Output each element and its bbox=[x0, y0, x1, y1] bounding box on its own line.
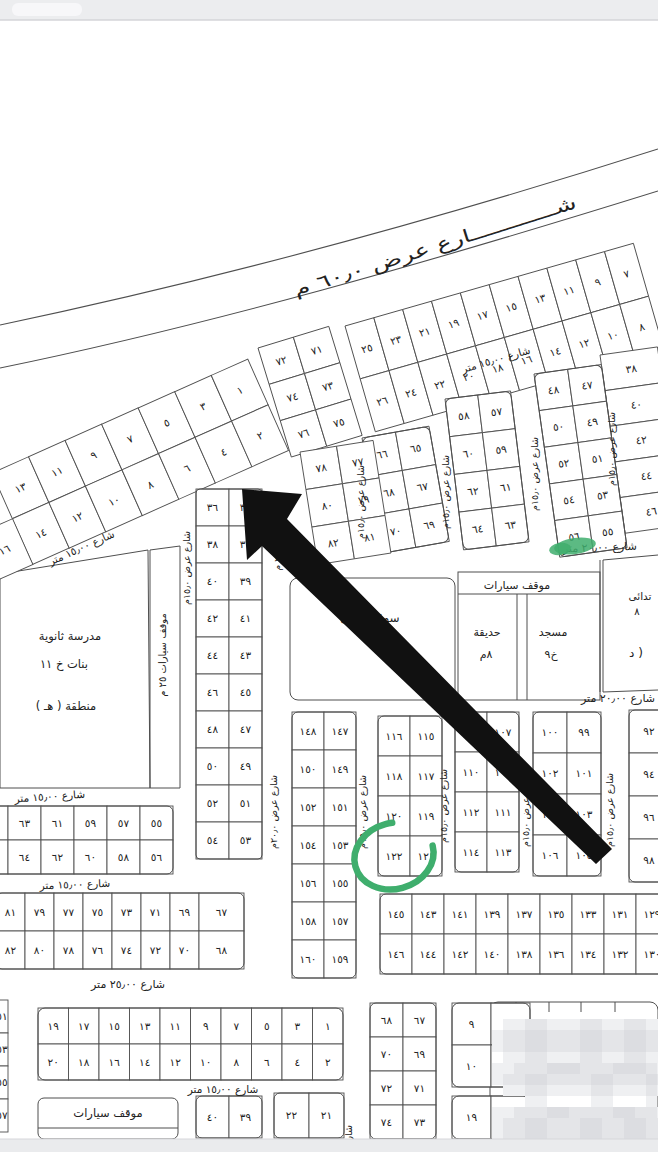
watermark-pixel bbox=[547, 1129, 558, 1140]
watermark-pixel bbox=[536, 1074, 547, 1085]
plot-number: ٤٧ bbox=[240, 723, 252, 735]
watermark-pixel bbox=[514, 1074, 525, 1085]
watermark-pixel bbox=[646, 1096, 657, 1107]
watermark-pixel bbox=[558, 1085, 569, 1096]
plot-number: ١٣٠ bbox=[644, 948, 658, 960]
plot-number: ٨٢ bbox=[327, 536, 340, 550]
watermark-pixel bbox=[580, 1019, 591, 1030]
watermark-pixel bbox=[503, 1107, 514, 1118]
watermark-pixel bbox=[503, 1063, 514, 1074]
watermark-pixel bbox=[602, 1096, 613, 1107]
plot-number: ١٣٤ bbox=[580, 948, 597, 960]
plot-number: ٣ bbox=[294, 1020, 300, 1032]
plot-number: ١ bbox=[325, 1020, 331, 1032]
plot-number: ٥٧ bbox=[490, 405, 503, 418]
watermark-pixel bbox=[635, 1030, 646, 1041]
watermark-pixel bbox=[591, 1041, 602, 1052]
plot-number: ١١٧ bbox=[418, 770, 435, 782]
plot-number: ٥٠ bbox=[552, 420, 565, 433]
plot-number: ٣٦ bbox=[207, 501, 219, 513]
watermark-pixel bbox=[624, 1063, 635, 1074]
watermark-pixel bbox=[646, 1129, 657, 1140]
watermark-pixel bbox=[635, 1019, 646, 1030]
watermark-pixel bbox=[613, 1019, 624, 1030]
plot-number: ١٥٦ bbox=[300, 877, 317, 889]
watermark-pixel bbox=[591, 1074, 602, 1085]
plot-number: ٩٢ bbox=[643, 725, 655, 737]
plot-number: ٥٨ bbox=[457, 409, 470, 422]
plot-number: ١٧ bbox=[78, 1020, 90, 1032]
watermark-pixel bbox=[558, 1030, 569, 1041]
plot-number: ٧٨ bbox=[63, 944, 75, 956]
watermark-pixel bbox=[558, 1052, 569, 1063]
plot-number: ٥٧ bbox=[118, 817, 130, 829]
plot-number: ١٥ bbox=[109, 1020, 120, 1032]
watermark-pixel bbox=[602, 1041, 613, 1052]
plot-number: ٦٨ bbox=[216, 944, 228, 956]
watermark-pixel bbox=[547, 1019, 558, 1030]
street-label: شارع ٢٥٫٠٠ متر bbox=[90, 978, 165, 991]
plot-number: ١٤٩ bbox=[332, 763, 349, 775]
plot-number: ٤٣ bbox=[240, 649, 252, 661]
watermark-pixel bbox=[525, 1096, 536, 1107]
plot-number: ٧٧ bbox=[63, 906, 75, 918]
watermark-pixel bbox=[536, 1107, 547, 1118]
plot-number: ٣٩ bbox=[240, 575, 252, 587]
watermark-pixel bbox=[525, 1118, 536, 1129]
plot-number: ٤٢ bbox=[207, 612, 219, 624]
street-label: موقف سيارات bbox=[73, 1106, 142, 1121]
watermark-pixel bbox=[569, 1129, 580, 1140]
plot-number: ١٥٤ bbox=[300, 839, 317, 851]
plot-number: ١١٣ bbox=[495, 846, 512, 858]
watermark-pixel bbox=[613, 1052, 624, 1063]
plot-number: ١٩ bbox=[48, 1020, 60, 1032]
plot-number: ٣٨ bbox=[625, 362, 638, 376]
watermark-pixel bbox=[492, 1129, 503, 1140]
plot-number: ٦١ bbox=[499, 480, 512, 493]
watermark-pixel bbox=[580, 1085, 591, 1096]
plot-number: ٦٩ bbox=[179, 906, 191, 918]
plot-number: ١٦ bbox=[109, 1056, 121, 1068]
watermark-pixel bbox=[613, 1063, 624, 1074]
watermark-pixel bbox=[514, 1129, 525, 1140]
plot-number: ٧٢ bbox=[150, 944, 162, 956]
watermark-pixel bbox=[591, 1129, 602, 1140]
plot-number: ١٢٠ bbox=[386, 810, 403, 822]
watermark-pixel bbox=[602, 1107, 613, 1118]
watermark-pixel bbox=[591, 1096, 602, 1107]
plot-number: ٤٥ bbox=[240, 686, 251, 698]
plot-number: ٧١ bbox=[150, 906, 161, 918]
watermark-pixel bbox=[635, 1041, 646, 1052]
plot-block-blk-1-20: ١٩١٧١٥١٣١١٩٧٥٣١٢٠١٨١٦١٤١٢١٠٨٦٤٢ bbox=[38, 1008, 343, 1080]
plot-number: ٤٠ bbox=[207, 575, 218, 587]
plot-number: ١٣ bbox=[139, 1020, 151, 1032]
plot-number: ١٤٤ bbox=[420, 948, 437, 960]
watermark-pixel bbox=[492, 1041, 503, 1052]
watermark-pixel bbox=[547, 1118, 558, 1129]
watermark-pixel bbox=[536, 1096, 547, 1107]
plot-block-blk-21-22: ٢٢٢١ bbox=[274, 1093, 344, 1138]
plot-number: ١٦٠ bbox=[300, 953, 317, 965]
plot-number: ٦٤ bbox=[19, 851, 30, 863]
plot-number: ١٥٥ bbox=[332, 877, 349, 889]
watermark-pixel bbox=[569, 1085, 580, 1096]
plot-number: ٩٦ bbox=[643, 811, 655, 823]
watermark-pixel bbox=[646, 1118, 657, 1129]
plot-number: ٤٢ bbox=[635, 433, 648, 447]
plot-number: ٤٤ bbox=[640, 469, 653, 482]
watermark-pixel bbox=[525, 1085, 536, 1096]
plot-number: ٤٠ bbox=[207, 1111, 218, 1123]
plot-number: ٦٧ bbox=[414, 1014, 426, 1026]
watermark-pixel bbox=[591, 1118, 602, 1129]
watermark-pixel bbox=[580, 1030, 591, 1041]
plot-number: ١٣٩ bbox=[484, 908, 501, 920]
watermark-pixel bbox=[569, 1107, 580, 1118]
watermark-pixel bbox=[613, 1107, 624, 1118]
top-bar-pill bbox=[12, 3, 82, 16]
plot-number: ١٤٦ bbox=[388, 948, 405, 960]
watermark-pixel bbox=[580, 1129, 591, 1140]
watermark-pixel bbox=[503, 1030, 514, 1041]
watermark-pixel bbox=[646, 1085, 657, 1096]
watermark-pixel bbox=[536, 1129, 547, 1140]
watermark-pixel bbox=[624, 1085, 635, 1096]
watermark-pixel bbox=[580, 1107, 591, 1118]
plot-number: ١٢٩ bbox=[644, 908, 658, 920]
plot-number: ٧٠ bbox=[179, 944, 190, 956]
plot-number: ١٠٢ bbox=[542, 767, 559, 779]
watermark-pixel bbox=[492, 1030, 503, 1041]
plot-number: ٥٩ bbox=[495, 443, 508, 456]
plot-number: ٦٥ bbox=[409, 441, 422, 455]
watermark-pixel bbox=[503, 1074, 514, 1085]
watermark-pixel bbox=[646, 1107, 657, 1118]
plot-number: ٦٩ bbox=[414, 1048, 426, 1060]
plot-number: ٥٩ bbox=[85, 817, 97, 829]
street-label: موقف سيارات bbox=[484, 579, 550, 592]
plot-block-blk-55-66: ٦٥٦٣٦١٥٩٥٧٥٥٦٦٦٤٦٢٦٠٥٨٥٦ bbox=[0, 806, 173, 874]
watermark-pixel bbox=[580, 1063, 591, 1074]
watermark-pixel bbox=[536, 1052, 547, 1063]
watermark-pixel bbox=[514, 1107, 525, 1118]
watermark-pixel bbox=[569, 1052, 580, 1063]
watermark-pixel bbox=[525, 1074, 536, 1085]
plot-number: ١٣٢ bbox=[612, 948, 629, 960]
plot-number: ٣٨ bbox=[207, 538, 219, 550]
plot-number: ٢٠ bbox=[48, 1056, 59, 1068]
watermark-pixel bbox=[514, 1118, 525, 1129]
watermark-pixel bbox=[569, 1019, 580, 1030]
plot-number: ١١٥ bbox=[418, 730, 435, 742]
street-label: خ٩ bbox=[544, 648, 558, 661]
plot-number: ٥٣ bbox=[596, 488, 609, 502]
watermark-pixel bbox=[547, 1107, 558, 1118]
watermark-pixel bbox=[591, 1030, 602, 1041]
plot-number: ٨١ bbox=[5, 906, 16, 918]
plot-number: ٥١ bbox=[240, 797, 251, 809]
watermark-pixel bbox=[591, 1063, 602, 1074]
plot-block-blk-127-146: ١٤٥١٤٣١٤١١٣٩١٣٧١٣٥١٣٣١٣١١٢٩١٢٧١٤٦١٤٤١٤٢١… bbox=[380, 894, 658, 974]
subdivision-map: شــــــــــــارع عرض ٦٠٫٠ م١٣١١٩٧٥٣١١٤١٢… bbox=[0, 0, 658, 1152]
scanned-plat-map-page: شــــــــــــارع عرض ٦٠٫٠ م١٣١١٩٧٥٣١١٤١٢… bbox=[0, 0, 658, 1152]
plot-number: ٨٠ bbox=[34, 944, 45, 956]
pixelated-watermark bbox=[492, 1019, 658, 1151]
watermark-pixel bbox=[514, 1041, 525, 1052]
watermark-pixel bbox=[646, 1074, 657, 1085]
plot-number: ١٩ bbox=[466, 1111, 478, 1123]
plot-number: ١٥٨ bbox=[300, 915, 317, 927]
plot-number: ٣٩ bbox=[240, 1111, 252, 1123]
watermark-pixel bbox=[635, 1118, 646, 1129]
watermark-pixel bbox=[602, 1129, 613, 1140]
plot-number: ٥٣ bbox=[240, 834, 252, 846]
watermark-pixel bbox=[558, 1019, 569, 1030]
plot-number: ١١٤ bbox=[463, 846, 480, 858]
watermark-pixel bbox=[613, 1030, 624, 1041]
plot-number: ٧٩ bbox=[34, 906, 46, 918]
watermark-pixel bbox=[635, 1074, 646, 1085]
street-label-vertical: شارع عرض ١٥٫٠م bbox=[604, 773, 615, 847]
plot-number: ٩٤ bbox=[643, 768, 654, 780]
plot-number: ١٣١ bbox=[612, 908, 629, 920]
watermark-pixel bbox=[503, 1052, 514, 1063]
plot-number: ٥٢ bbox=[557, 456, 570, 470]
plot-number: ٥٥ bbox=[151, 817, 162, 829]
street-label: ٨م bbox=[480, 648, 493, 661]
plot-number: ٢٢ bbox=[286, 1109, 298, 1121]
plot-cell bbox=[0, 806, 8, 840]
watermark-pixel bbox=[492, 1074, 503, 1085]
watermark-pixel bbox=[602, 1074, 613, 1085]
watermark-pixel bbox=[547, 1052, 558, 1063]
plot-number: ٧٢ bbox=[381, 1082, 393, 1094]
watermark-pixel bbox=[646, 1052, 657, 1063]
plot-number: ١١٢ bbox=[463, 806, 480, 818]
plot-number: ٧٣ bbox=[121, 906, 133, 918]
plot-number: ٢ bbox=[325, 1056, 331, 1068]
watermark-pixel bbox=[569, 1118, 580, 1129]
plot-number: ٥١ bbox=[591, 452, 604, 465]
plot-number: ١٣٥ bbox=[548, 908, 565, 920]
watermark-pixel bbox=[503, 1085, 514, 1096]
watermark-pixel bbox=[536, 1041, 547, 1052]
watermark-pixel bbox=[536, 1063, 547, 1074]
watermark-pixel bbox=[547, 1030, 558, 1041]
plot-number: ٦٣ bbox=[19, 817, 31, 829]
plot-block-blk-67-82-low: ٨١٧٩٧٧٧٥٧٣٧١٦٩٦٧٨٢٨٠٧٨٧٦٧٤٧٢٧٠٦٨ bbox=[0, 893, 244, 969]
plot-number: ٧٤ bbox=[381, 1116, 392, 1128]
watermark-pixel bbox=[624, 1118, 635, 1129]
plot-number: ٦٢ bbox=[467, 484, 480, 497]
watermark-pixel bbox=[558, 1107, 569, 1118]
watermark-pixel bbox=[580, 1118, 591, 1129]
watermark-pixel bbox=[569, 1063, 580, 1074]
plot-number: ١٥٣ bbox=[332, 839, 349, 851]
plot-number: ٤٠ bbox=[630, 397, 643, 410]
plot-number: ٦٢ bbox=[52, 851, 64, 863]
watermark-pixel bbox=[602, 1085, 613, 1096]
plot-number: ٤ bbox=[294, 1056, 300, 1068]
plot-number: ٥٤ bbox=[562, 493, 575, 506]
plot-number: ١٥١ bbox=[332, 801, 349, 813]
street-label: شارع ١٥٫٠٠ متر bbox=[187, 1083, 259, 1096]
watermark-pixel bbox=[580, 1052, 591, 1063]
plot-number: ٦٠ bbox=[85, 851, 96, 863]
street-label-vertical: شارع عرض ١٥٫٠م bbox=[181, 531, 192, 605]
plot-number: ٦٣ bbox=[504, 518, 517, 531]
plot-number: ٤٩ bbox=[586, 415, 599, 429]
street-label-vertical: شارع عرض ١٥٫٠م bbox=[438, 769, 449, 843]
watermark-pixel bbox=[580, 1041, 591, 1052]
watermark-pixel bbox=[503, 1118, 514, 1129]
plot-number: ٦٤ bbox=[471, 522, 484, 535]
plot-number: ١٠٠ bbox=[542, 726, 559, 738]
street-label: بنات خ ١١ bbox=[40, 657, 88, 671]
plot-number: ١٥٩ bbox=[332, 953, 349, 965]
plot-number: ١٠ bbox=[466, 1060, 477, 1072]
watermark-pixel bbox=[503, 1129, 514, 1140]
watermark-pixel bbox=[613, 1129, 624, 1140]
watermark-pixel bbox=[635, 1063, 646, 1074]
watermark-pixel bbox=[624, 1019, 635, 1030]
watermark-pixel bbox=[558, 1063, 569, 1074]
plot-number: ١١٨ bbox=[386, 770, 403, 782]
plot-number: ٧٦ bbox=[92, 944, 104, 956]
watermark-pixel bbox=[580, 1074, 591, 1085]
watermark-pixel bbox=[635, 1107, 646, 1118]
watermark-pixel bbox=[646, 1063, 657, 1074]
plot-number: ٥٧ bbox=[0, 1109, 8, 1121]
watermark-pixel bbox=[525, 1052, 536, 1063]
plot-number: ١٠٦ bbox=[542, 849, 559, 861]
plot-number: ٧٠ bbox=[389, 524, 402, 538]
plot-number: ٦١ bbox=[52, 817, 63, 829]
street-label: شارع ٢٠٫٠٠ متر bbox=[580, 692, 655, 705]
watermark-pixel bbox=[624, 1107, 635, 1118]
street-label-vertical: شارع عرض ١٥٫٠م bbox=[606, 412, 617, 486]
plot-number: ٦٨ bbox=[381, 1014, 393, 1026]
plot-number: ١١٠ bbox=[463, 766, 480, 778]
watermark-pixel bbox=[558, 1118, 569, 1129]
plot-number: ١٤٣ bbox=[420, 908, 437, 920]
watermark-pixel bbox=[646, 1041, 657, 1052]
watermark-pixel bbox=[558, 1041, 569, 1052]
plot-cell bbox=[0, 840, 8, 874]
watermark-pixel bbox=[514, 1063, 525, 1074]
street-label-vertical: شارع عرض ١٥٫٠م bbox=[355, 465, 366, 539]
plot-number: ١٠ bbox=[200, 1056, 211, 1068]
plot-number: ٤٨ bbox=[207, 723, 219, 735]
watermark-pixel bbox=[624, 1129, 635, 1140]
watermark-pixel bbox=[613, 1118, 624, 1129]
street-label: مدرسة ثانوية bbox=[39, 629, 101, 644]
watermark-pixel bbox=[569, 1030, 580, 1041]
plot-number: ١٤ bbox=[139, 1056, 150, 1068]
watermark-pixel bbox=[646, 1030, 657, 1041]
plot-number: ٥٦ bbox=[151, 851, 163, 863]
watermark-pixel bbox=[492, 1107, 503, 1118]
watermark-pixel bbox=[613, 1074, 624, 1085]
watermark-pixel bbox=[514, 1085, 525, 1096]
plot-number: ١٣٧ bbox=[516, 908, 533, 920]
plot-number: ١٤١ bbox=[452, 908, 469, 920]
plot-number: ٤٩ bbox=[240, 760, 252, 772]
street-label-vertical: موقف سيارات ٢٥ م bbox=[157, 613, 168, 697]
plot-number: ٢١ bbox=[321, 1109, 332, 1121]
plot-block-blk-147-160: ١٤٨١٤٧١٥٠١٤٩١٥٢١٥١١٥٤١٥٣١٥٦١٥٥١٥٨١٥٧١٦٠١… bbox=[292, 712, 356, 978]
plot-number: ١١٩ bbox=[418, 810, 435, 822]
street-label: تدائى bbox=[628, 590, 651, 602]
plot-number: ٥٠ bbox=[207, 760, 218, 772]
watermark-pixel bbox=[525, 1107, 536, 1118]
watermark-pixel bbox=[547, 1063, 558, 1074]
plot-number: ١٥٧ bbox=[332, 915, 349, 927]
watermark-pixel bbox=[613, 1041, 624, 1052]
watermark-pixel bbox=[492, 1063, 503, 1074]
watermark-pixel bbox=[591, 1019, 602, 1030]
watermark-pixel bbox=[635, 1052, 646, 1063]
plot-number: ١٣٣ bbox=[580, 908, 597, 920]
watermark-pixel bbox=[536, 1118, 547, 1129]
plot-number: ١٢٢ bbox=[386, 850, 403, 862]
street-label: ( د bbox=[629, 646, 643, 660]
watermark-pixel bbox=[558, 1129, 569, 1140]
watermark-pixel bbox=[514, 1030, 525, 1041]
watermark-pixel bbox=[624, 1074, 635, 1085]
watermark-pixel bbox=[591, 1107, 602, 1118]
plot-number: ١١١ bbox=[495, 806, 512, 818]
watermark-pixel bbox=[591, 1085, 602, 1096]
plot-number: ٧١ bbox=[414, 1082, 425, 1094]
plot-number: ٥١ bbox=[0, 1010, 8, 1022]
watermark-pixel bbox=[613, 1085, 624, 1096]
watermark-pixel bbox=[569, 1041, 580, 1052]
watermark-pixel bbox=[536, 1085, 547, 1096]
watermark-pixel bbox=[624, 1030, 635, 1041]
plot-number: ١٤٠ bbox=[484, 948, 501, 960]
plot-number: ٩ bbox=[469, 1018, 475, 1030]
plot-number: ١١٦ bbox=[386, 730, 403, 742]
watermark-pixel bbox=[602, 1019, 613, 1030]
plot-number: ٧٠ bbox=[381, 1048, 392, 1060]
watermark-pixel bbox=[536, 1019, 547, 1030]
watermark-pixel bbox=[602, 1118, 613, 1129]
street-label-vertical: شارع عرض ١٥٫٠م bbox=[440, 455, 451, 529]
watermark-pixel bbox=[624, 1052, 635, 1063]
plot-number: ١٤٨ bbox=[300, 725, 317, 737]
street-label: ٨ bbox=[634, 606, 640, 617]
plot-number: ٥٤ bbox=[207, 834, 218, 846]
plot-number: ١١ bbox=[170, 1020, 181, 1032]
watermark-pixel bbox=[547, 1041, 558, 1052]
watermark-pixel bbox=[635, 1129, 646, 1140]
plot-block-edge-51-57: ٥١٥٣٥٥٥٧ bbox=[0, 1000, 8, 1132]
watermark-pixel bbox=[547, 1085, 558, 1096]
watermark-pixel bbox=[624, 1041, 635, 1052]
street-label-vertical: شارع عرض ١٥٫٠م bbox=[529, 437, 540, 511]
watermark-pixel bbox=[503, 1019, 514, 1030]
plot-number: ٥٥ bbox=[601, 525, 614, 538]
plot-number: ١٠١ bbox=[576, 767, 593, 779]
plot-number: ٧٥ bbox=[92, 906, 103, 918]
top-bar bbox=[0, 0, 658, 20]
plot-number: ١٥٢ bbox=[300, 801, 317, 813]
watermark-pixel bbox=[503, 1041, 514, 1052]
plot-block-blk-39-40: ٤٠٣٩ bbox=[196, 1096, 262, 1138]
